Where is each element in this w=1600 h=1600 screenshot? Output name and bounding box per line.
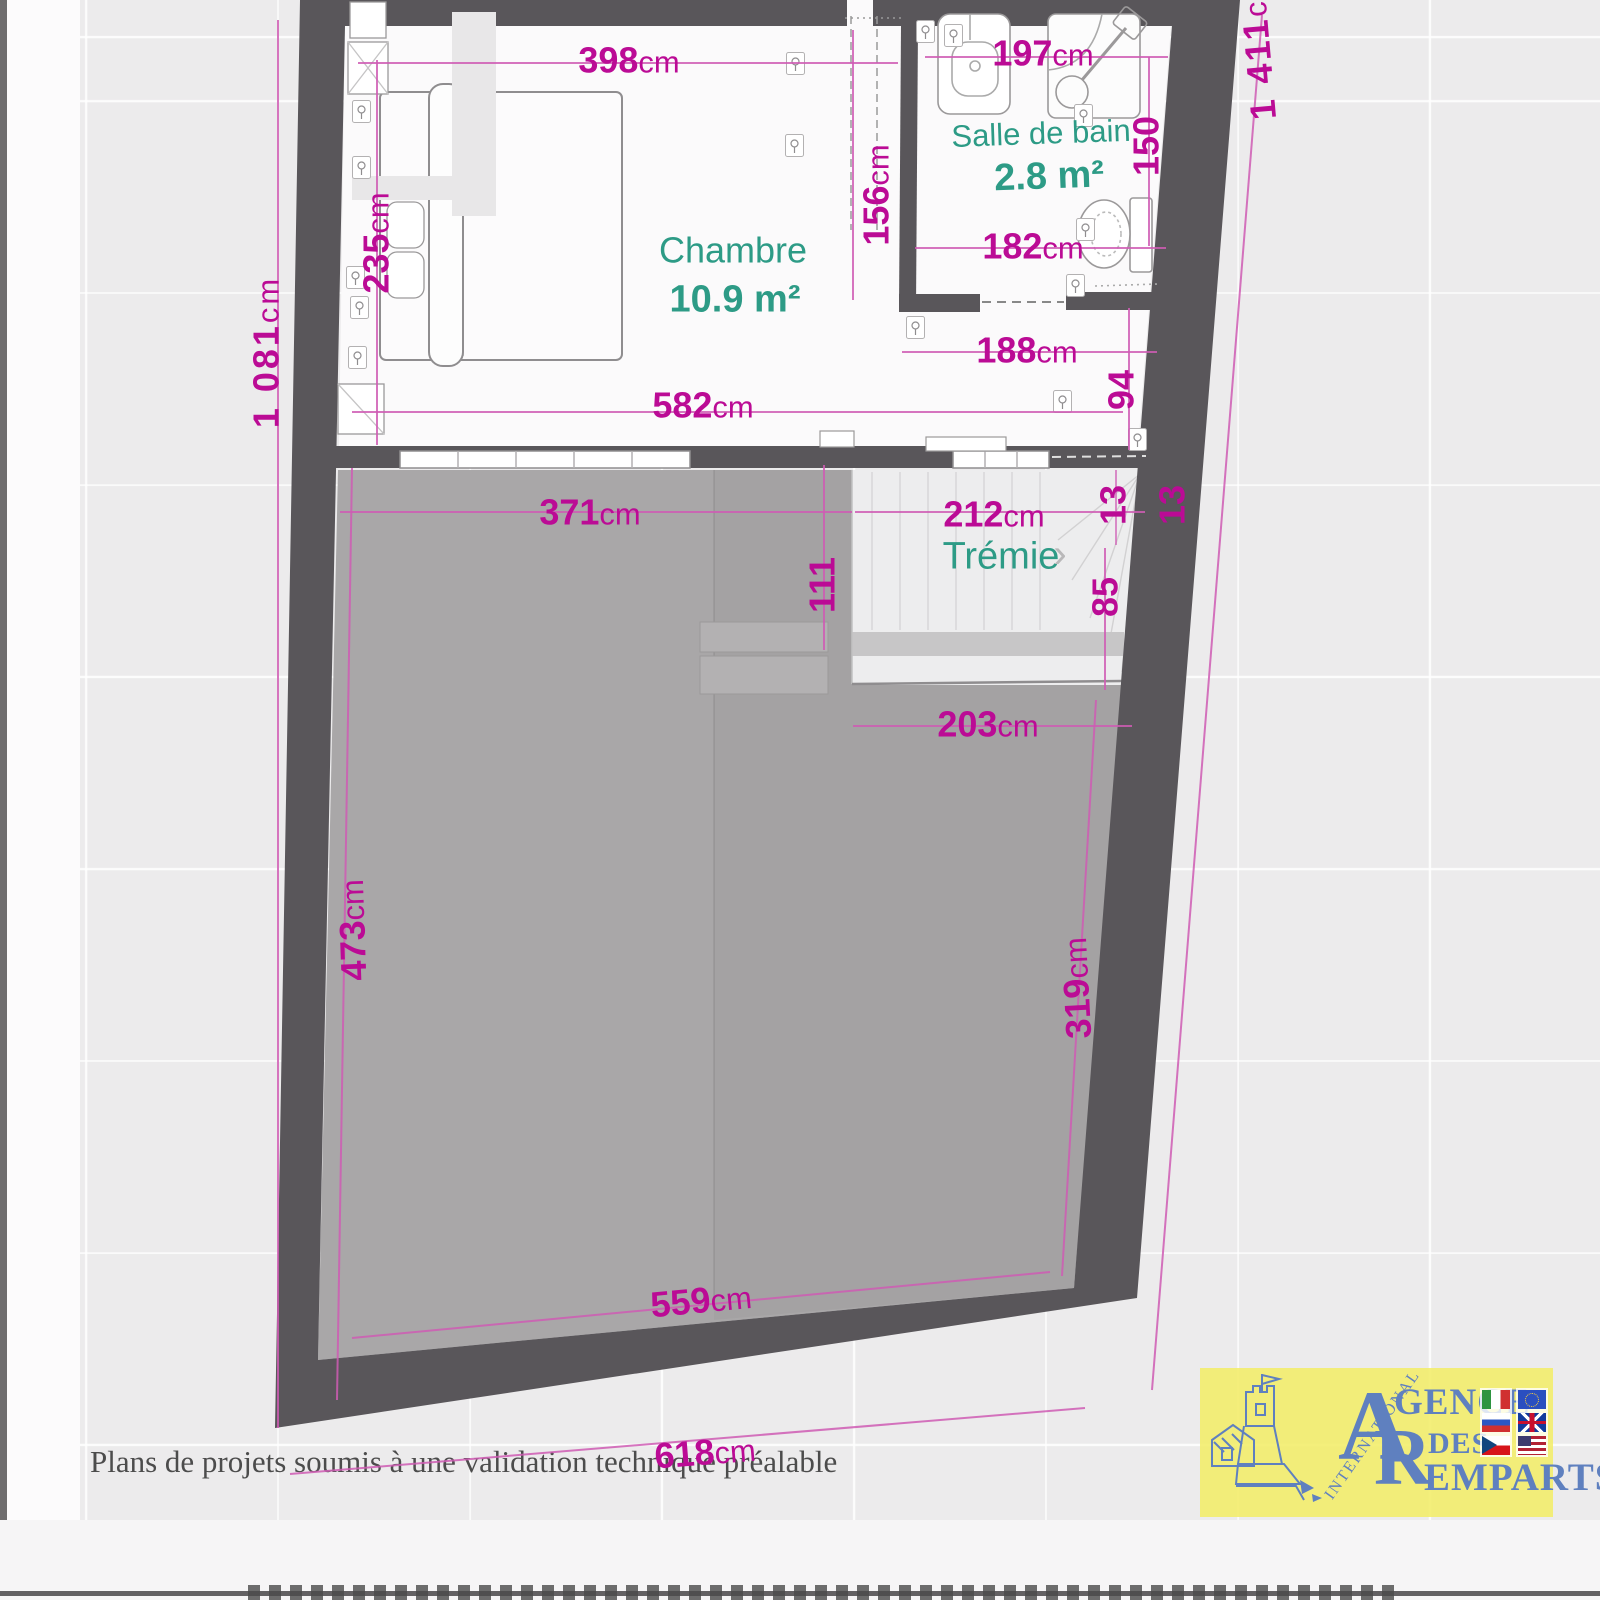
bedroom-label: Chambre (659, 230, 807, 271)
dim-94: 94 (1101, 370, 1142, 410)
tremie-label: Trémie (943, 535, 1060, 577)
dim-13-inner: 13 (1093, 485, 1134, 525)
dim-182: 182cm (982, 226, 1083, 267)
agency-logo: INTERNATIONAL A GENCE R DES EMPARTS (1200, 1368, 1553, 1517)
dim-13-wall: 13 (1152, 485, 1193, 525)
dim-188: 188cm (976, 330, 1077, 371)
dim-235: 235cm (356, 192, 397, 293)
dim-111: 111 (802, 557, 843, 613)
floor-plan-drawing: Plans de projets soumis à une validation… (0, 0, 1600, 1600)
dim-582: 582cm (652, 385, 753, 426)
dim-473: 473cm (330, 879, 375, 982)
eu-flag (1518, 1390, 1546, 1409)
bathroom-label: Salle de bain (951, 113, 1131, 154)
bedroom-area: 10.9 m² (670, 278, 801, 320)
floor-plan-page: Plans de projets soumis à une validation… (0, 0, 1600, 1600)
dim-371: 371cm (539, 492, 640, 533)
castle-logo-drawing (1200, 1368, 1330, 1517)
czech-flag (1482, 1436, 1510, 1455)
bathroom-area: 2.8 m² (993, 153, 1104, 199)
logo-word-des: DES (1428, 1429, 1489, 1459)
dim-203: 203cm (937, 704, 1038, 745)
dim-212: 212cm (943, 494, 1044, 535)
tremie-arrow-icon: › (1053, 532, 1066, 576)
dim-1081: 1 081cm (246, 276, 287, 428)
lower-level-furniture (700, 622, 828, 694)
partition-bedroom-bath (899, 26, 918, 308)
dim-1411: 1 411cm (1230, 0, 1284, 122)
uk-flag (1518, 1413, 1546, 1432)
dim-150: 150 (1126, 116, 1167, 176)
russia-flag (1482, 1413, 1510, 1432)
clipped-text-row (248, 1585, 1398, 1600)
italy-flag (1482, 1390, 1510, 1409)
logo-word-emparts: EMPARTS (1424, 1458, 1600, 1497)
dim-85: 85 (1085, 577, 1126, 617)
dim-398: 398cm (578, 40, 679, 81)
dim-319: 319cm (1053, 936, 1099, 1039)
bed (380, 84, 622, 366)
dim-197: 197cm (992, 33, 1093, 74)
usa-flag (1518, 1436, 1546, 1455)
dim-156: 156cm (856, 144, 897, 245)
